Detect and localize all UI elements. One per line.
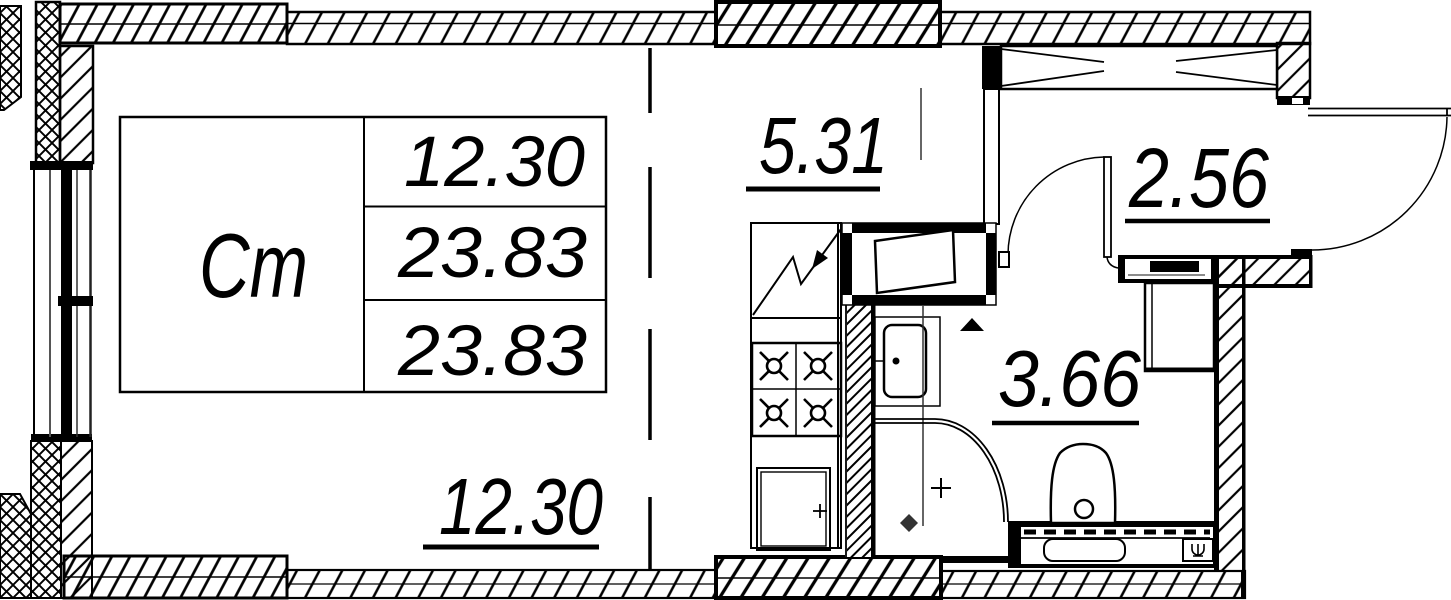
svg-text:12.30: 12.30 (404, 123, 585, 202)
svg-text:5.31: 5.31 (759, 101, 888, 190)
svg-text:12.30: 12.30 (439, 462, 603, 551)
svg-text:2.56: 2.56 (1128, 131, 1269, 225)
svg-text:Ст: Ст (199, 216, 308, 317)
svg-text:3.66: 3.66 (998, 334, 1141, 423)
svg-text:23.83: 23.83 (397, 312, 587, 391)
svg-text:23.83: 23.83 (397, 214, 587, 293)
